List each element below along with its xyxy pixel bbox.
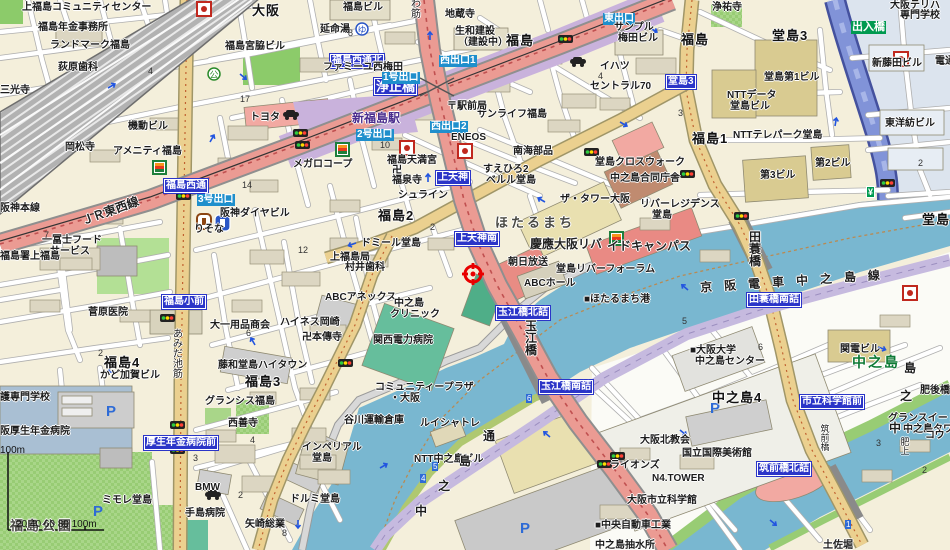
svg-text:P: P xyxy=(106,403,116,420)
svg-text:公: 公 xyxy=(209,70,218,80)
svg-text:ゆ: ゆ xyxy=(357,25,366,35)
svg-text:P: P xyxy=(520,520,530,537)
